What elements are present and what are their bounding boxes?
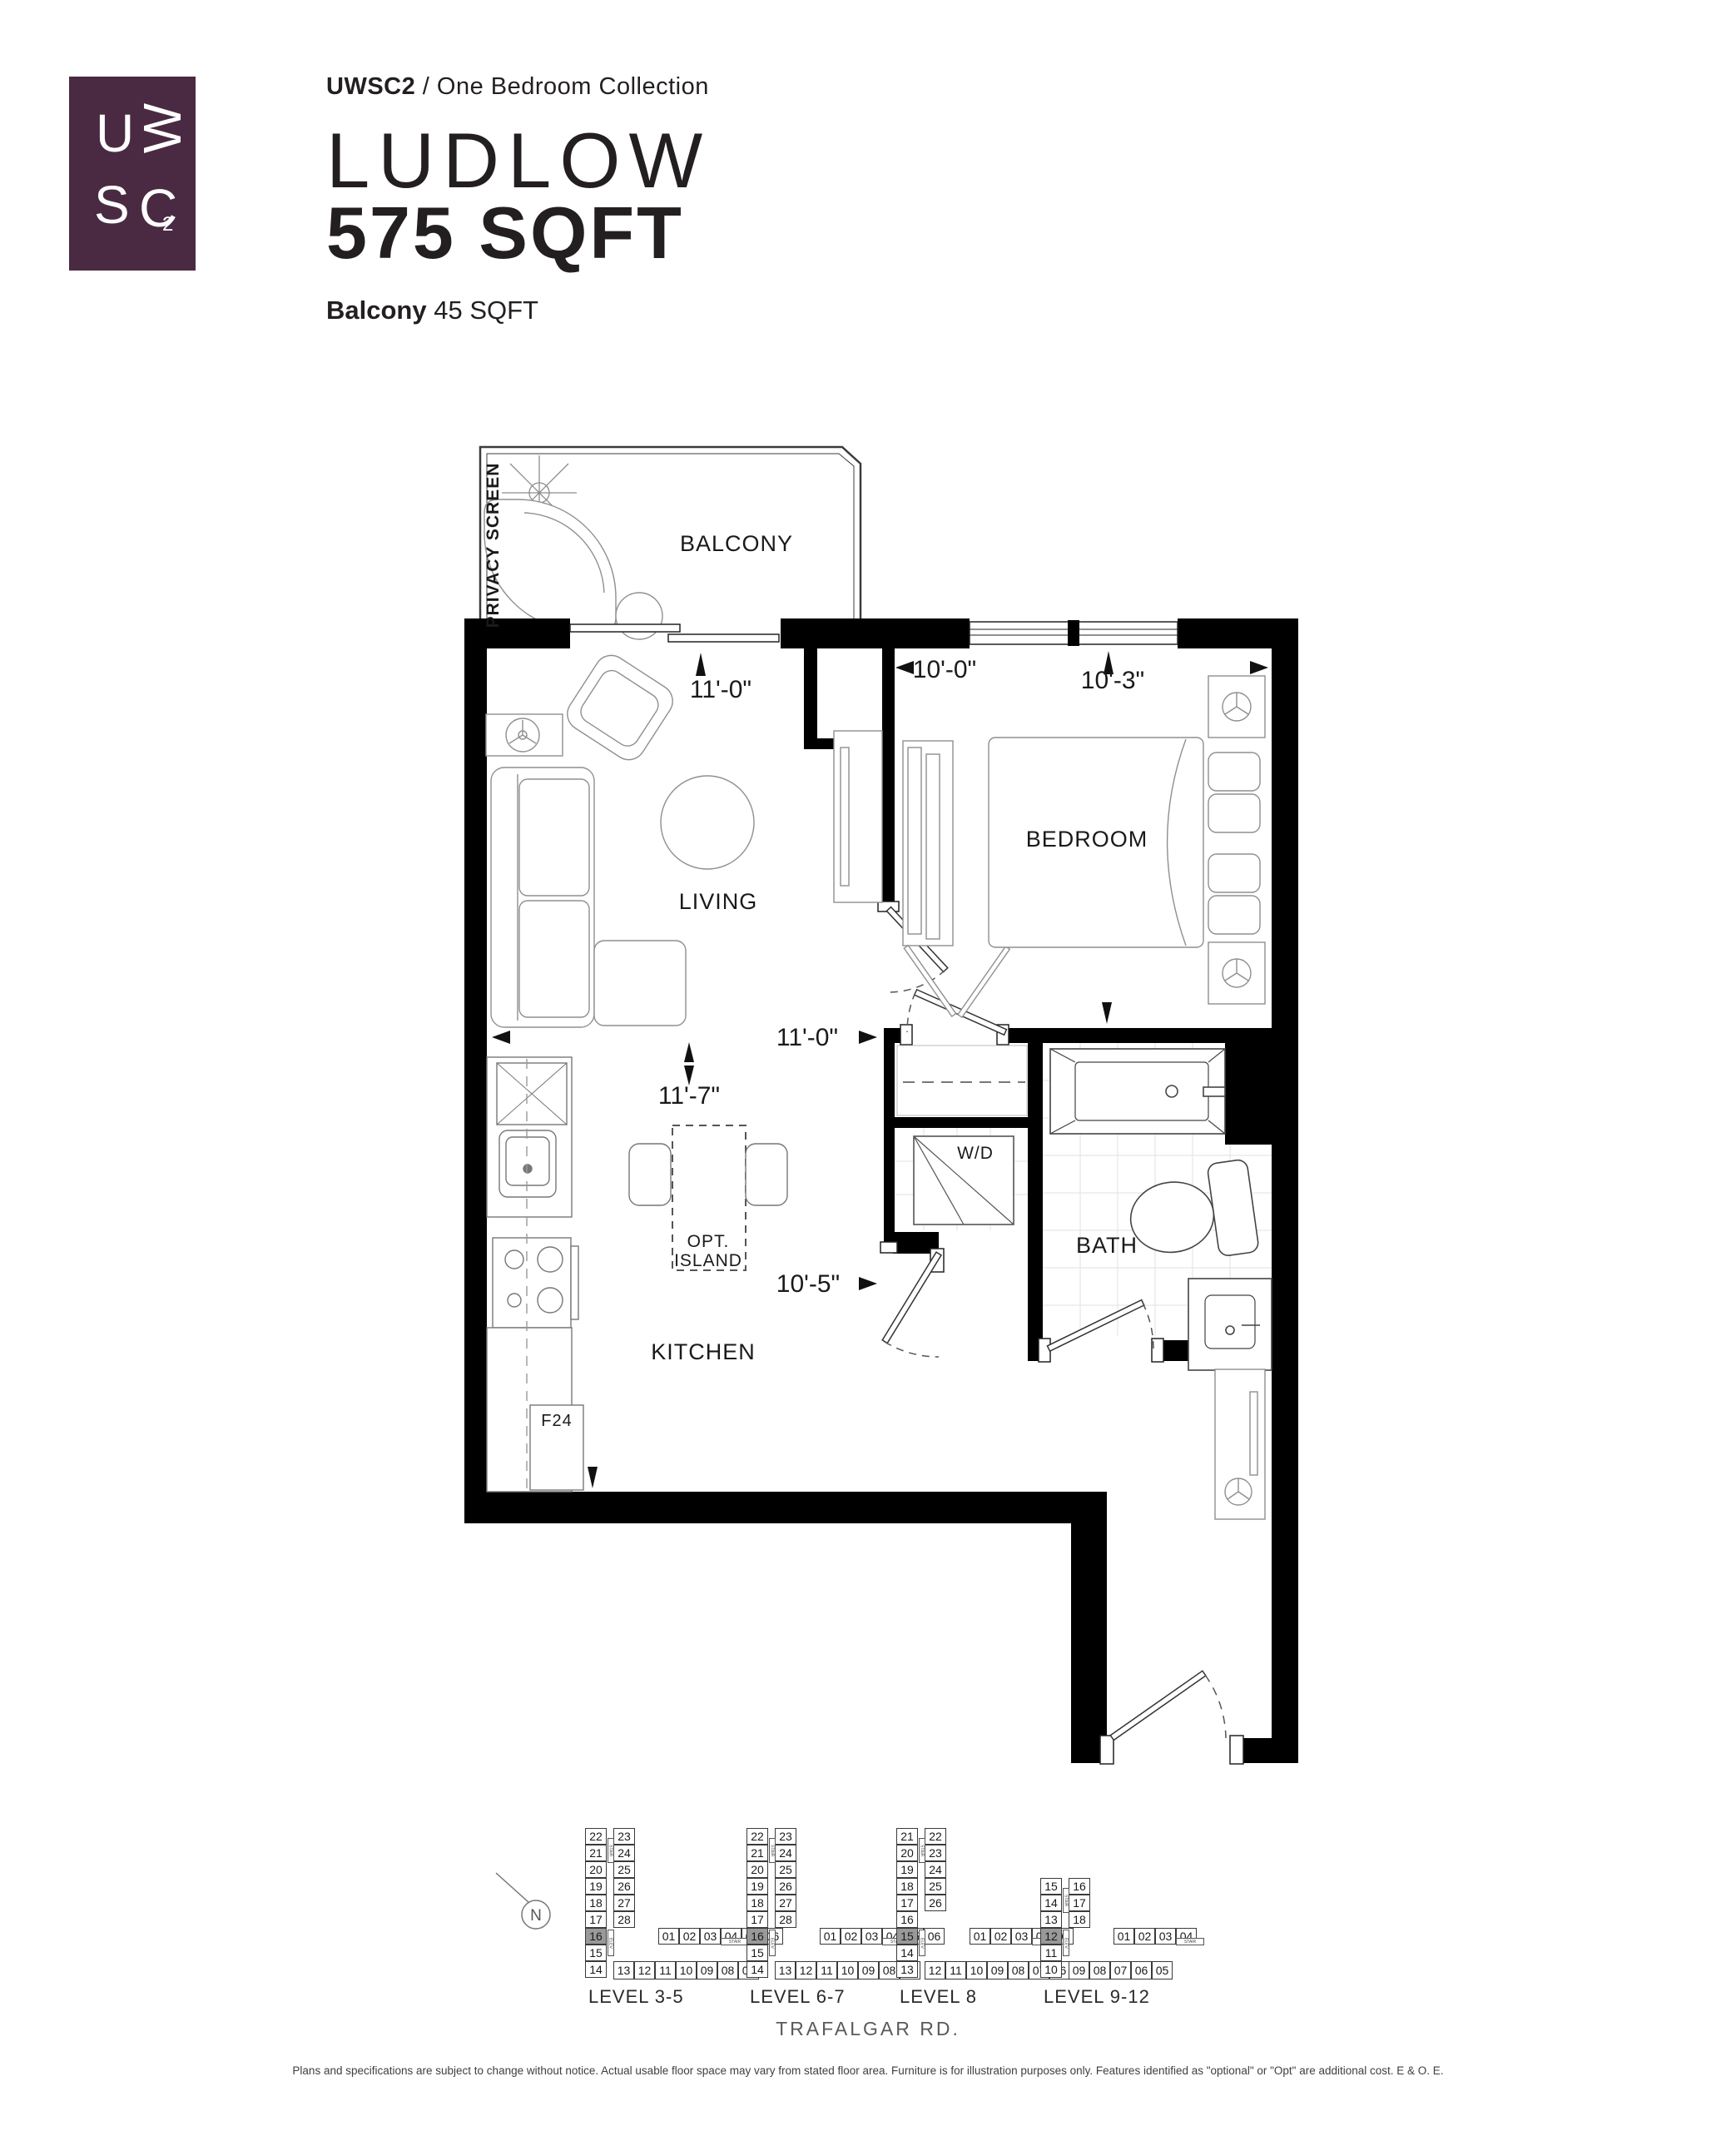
keyplan-unit: 02 [679, 1928, 700, 1945]
keyplan-unit: 15 [746, 1945, 768, 1961]
stair-shaft: STAIR [721, 1938, 749, 1945]
keyplan-unit: 19 [585, 1878, 607, 1895]
keyplan-unit: 14 [585, 1961, 607, 1978]
keyplan-unit: 11 [816, 1961, 837, 1979]
keyplan-unit: 25 [925, 1878, 946, 1895]
stair-elev-shaft: STAIR [608, 1838, 614, 1863]
stair-elev-shaft: ELEV [1063, 1930, 1069, 1956]
keyplan-unit: 24 [925, 1861, 946, 1878]
keyplan-unit: 18 [896, 1878, 918, 1895]
keyplan-unit: 01 [1114, 1928, 1134, 1945]
keyplan-unit: 20 [746, 1861, 768, 1878]
keyplan-unit: 02 [990, 1928, 1011, 1945]
keyplan-unit: 03 [700, 1928, 721, 1945]
keyplan-unit: 25 [613, 1861, 635, 1878]
keyplan-unit: 02 [1134, 1928, 1155, 1945]
keyplan-unit: 18 [1069, 1911, 1090, 1928]
keyplan-unit: 16 [1069, 1878, 1090, 1895]
stair-elev-shaft: ELEV [608, 1930, 614, 1956]
keyplan-unit: 13 [613, 1961, 634, 1979]
keyplan-unit: 18 [585, 1895, 607, 1911]
keyplan-unit: 01 [658, 1928, 679, 1945]
keyplan-unit: 23 [925, 1845, 946, 1861]
keyplan-unit: 26 [775, 1878, 796, 1895]
keyplan-unit: 14 [746, 1961, 768, 1978]
keyplan-unit: 11 [945, 1961, 966, 1979]
stair-shaft: STAIR [1176, 1938, 1204, 1945]
keyplan-unit: 21 [746, 1845, 768, 1861]
street-label: TRAFALGAR RD. [452, 2018, 1284, 2040]
keyplan-unit: 08 [1089, 1961, 1110, 1979]
stair-elev-shaft: ELEV [919, 1930, 925, 1956]
keyplan-unit: 17 [585, 1911, 607, 1928]
keyplan-unit: 24 [775, 1845, 796, 1861]
keyplan-unit: 09 [697, 1961, 717, 1979]
keyplan-unit: 16 [585, 1928, 607, 1945]
keyplan-unit: 13 [896, 1961, 918, 1978]
keyplan-unit: 18 [746, 1895, 768, 1911]
keyplan-unit: 11 [1040, 1945, 1062, 1961]
keyplan-unit: 23 [775, 1828, 796, 1845]
keyplan-level-label: LEVEL 3-5 [588, 1986, 684, 2008]
keyplan-unit: 20 [896, 1845, 918, 1861]
keyplan-unit: 10 [1040, 1961, 1062, 1978]
keyplan-unit: 08 [1008, 1961, 1029, 1979]
keyplan-unit: 17 [1069, 1895, 1090, 1911]
keyplan-unit: 09 [1069, 1961, 1089, 1979]
keyplan-unit: 15 [1040, 1878, 1062, 1895]
keyplan-unit: 14 [1040, 1895, 1062, 1911]
keyplan-unit: 02 [841, 1928, 861, 1945]
keyplan-unit: 27 [613, 1895, 635, 1911]
keyplan-unit: 11 [655, 1961, 676, 1979]
disclaimer-text: Plans and specifications are subject to … [0, 2064, 1736, 2077]
keyplan-unit: 12 [925, 1961, 945, 1979]
keyplan-unit: 12 [634, 1961, 655, 1979]
keyplan-unit: 13 [1040, 1911, 1062, 1928]
floorplan-sheet: U W S C 2 UWSC2 / One Bedroom Collection… [0, 0, 1736, 2131]
keyplan-unit: 03 [1011, 1928, 1032, 1945]
keyplan-level-label: LEVEL 8 [900, 1986, 977, 2008]
keyplan-unit: 13 [775, 1961, 796, 1979]
keyplan-unit: 15 [896, 1928, 918, 1945]
stair-elev-shaft: STAIR [919, 1838, 925, 1863]
keyplan-unit: 24 [613, 1845, 635, 1861]
keyplan-unit: 12 [1040, 1928, 1062, 1945]
keyplan-unit: 15 [585, 1945, 607, 1961]
keyplan-unit: 07 [1110, 1961, 1131, 1979]
keyplan-unit: 27 [775, 1895, 796, 1911]
keyplan-unit: 12 [796, 1961, 816, 1979]
keyplan-unit: 09 [858, 1961, 879, 1979]
keyplan-unit: 01 [970, 1928, 990, 1945]
keyplan-unit: 26 [925, 1895, 946, 1911]
keyplan-unit: 22 [925, 1828, 946, 1845]
keyplan-unit: 19 [746, 1878, 768, 1895]
keyplan-unit: 22 [585, 1828, 607, 1845]
keyplan-unit: 28 [613, 1911, 635, 1928]
keyplan-unit: 09 [987, 1961, 1008, 1979]
keyplan-unit: 05 [1152, 1961, 1173, 1979]
keyplan-unit: 26 [613, 1878, 635, 1895]
keyplan-unit: 22 [746, 1828, 768, 1845]
keyplan-unit: 03 [1155, 1928, 1176, 1945]
keyplan-unit: 28 [775, 1911, 796, 1928]
keyplan-unit: 03 [861, 1928, 882, 1945]
keyplan-unit: 01 [820, 1928, 841, 1945]
keyplan-unit: 21 [585, 1845, 607, 1861]
keyplan-unit: 25 [775, 1861, 796, 1878]
keyplan-unit: 10 [837, 1961, 858, 1979]
keyplan-unit: 08 [717, 1961, 738, 1979]
keyplan-unit: 06 [1131, 1961, 1152, 1979]
keyplan-unit: 16 [746, 1928, 768, 1945]
keyplan-unit: 17 [896, 1895, 918, 1911]
keyplan-level-label: LEVEL 9-12 [1044, 1986, 1150, 2008]
keyplan-unit: 17 [746, 1911, 768, 1928]
keyplan-unit: 10 [676, 1961, 697, 1979]
keyplans: 2221201918171615142324252627280102030405… [0, 0, 1736, 2131]
stair-elev-shaft: ELEV [769, 1930, 776, 1956]
keyplan-unit: 14 [896, 1945, 918, 1961]
stair-elev-shaft: STAIR [1063, 1888, 1069, 1913]
keyplan-level-label: LEVEL 6-7 [750, 1986, 846, 2008]
keyplan-unit: 19 [896, 1861, 918, 1878]
stair-elev-shaft: STAIR [769, 1838, 776, 1863]
keyplan-unit: 16 [896, 1911, 918, 1928]
keyplan-unit: 23 [613, 1828, 635, 1845]
keyplan-unit: 21 [896, 1828, 918, 1845]
keyplan-unit: 20 [585, 1861, 607, 1878]
keyplan-unit: 10 [966, 1961, 987, 1979]
